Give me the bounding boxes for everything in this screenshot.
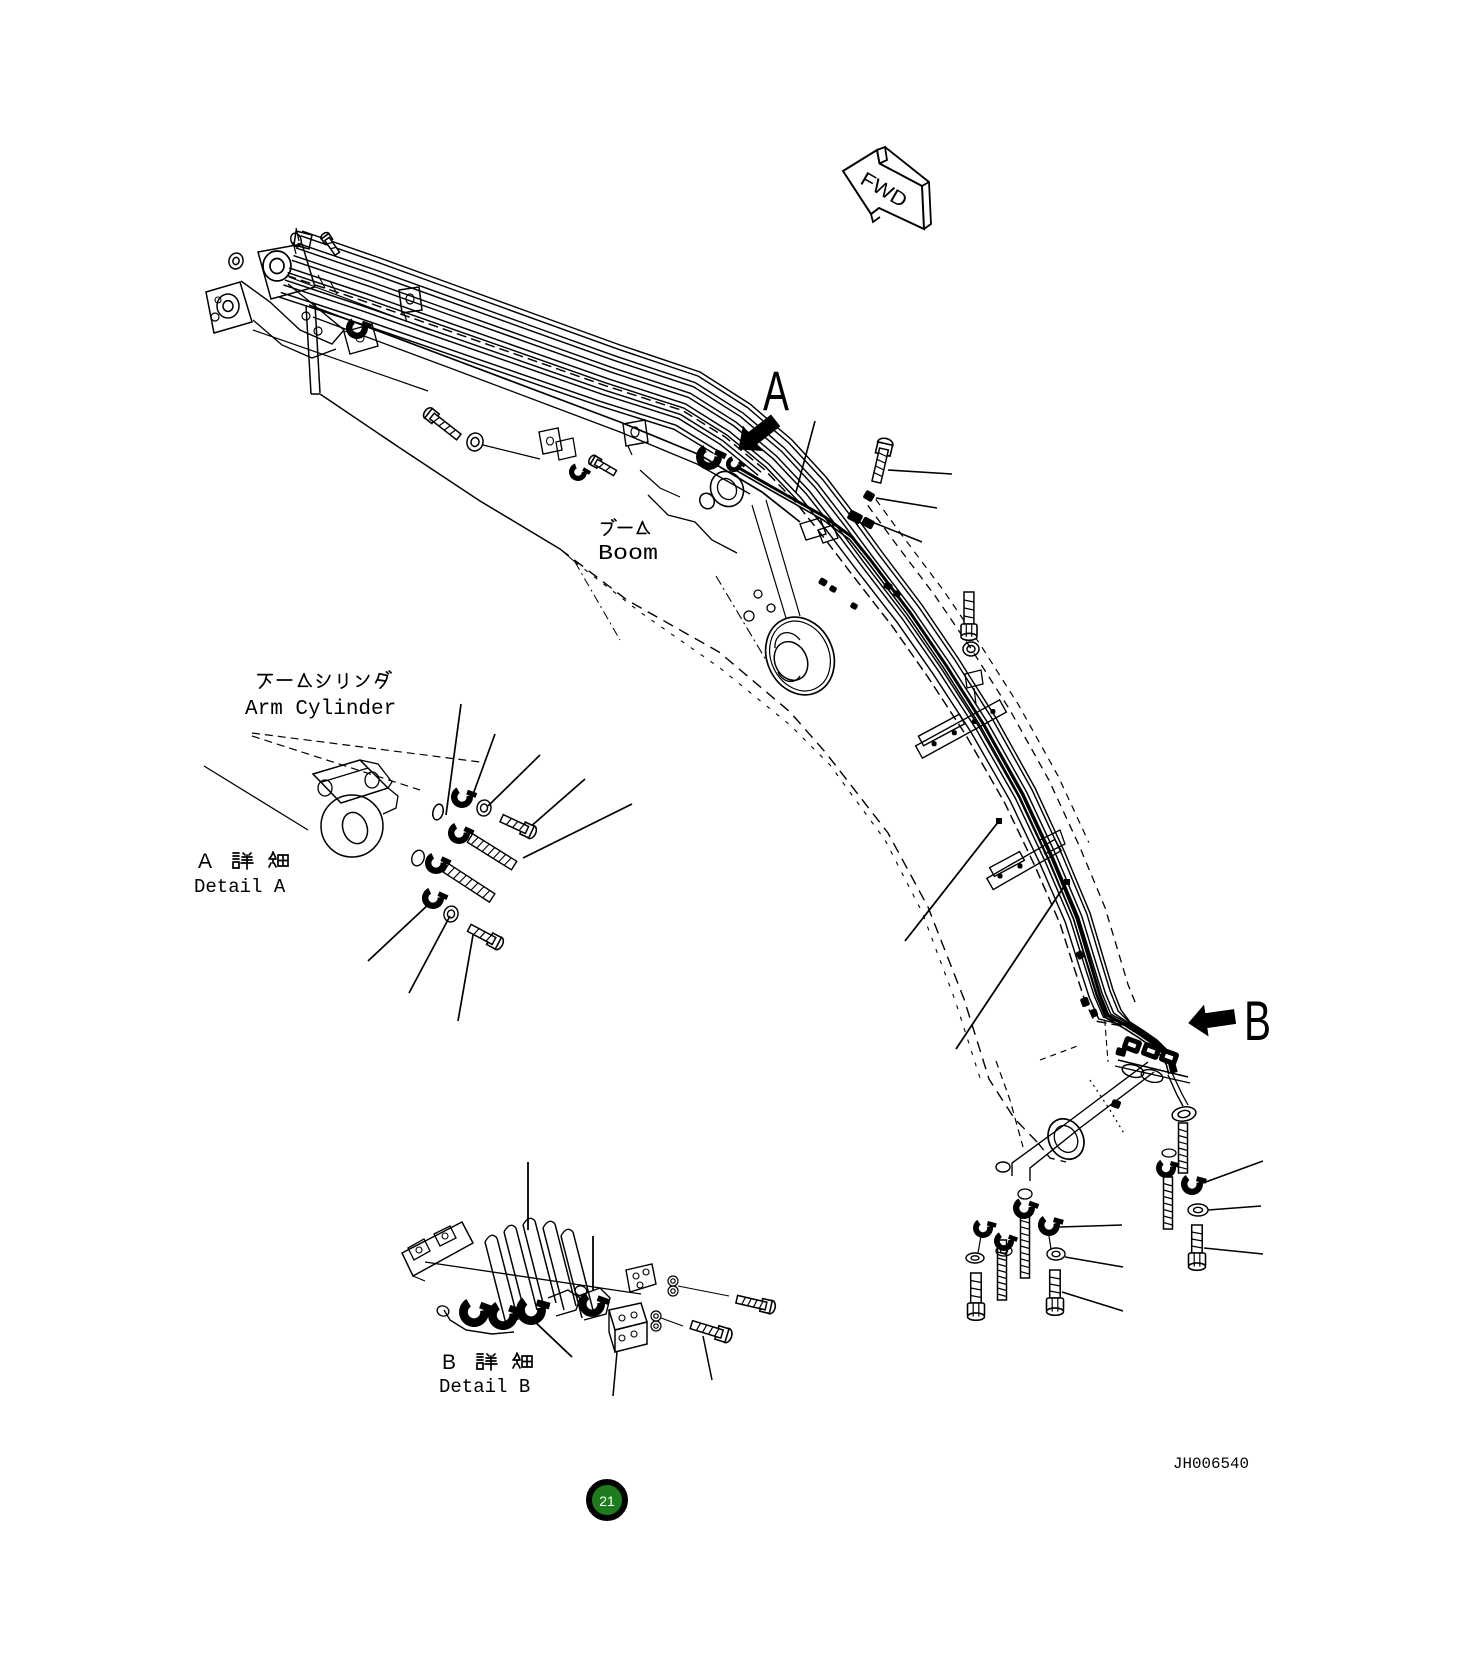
svg-text:JH006540: JH006540	[1173, 1455, 1249, 1473]
svg-text:B: B	[442, 1351, 456, 1374]
svg-text:A: A	[198, 850, 212, 873]
svg-text:Boom: Boom	[598, 543, 658, 566]
svg-text:Detail B: Detail B	[439, 1376, 530, 1398]
svg-text:Arm Cylinder: Arm Cylinder	[245, 698, 396, 721]
svg-text:21: 21	[599, 1493, 615, 1509]
svg-text:B: B	[1244, 989, 1271, 1052]
svg-text:Detail A: Detail A	[194, 876, 286, 898]
svg-text:A: A	[763, 359, 789, 422]
